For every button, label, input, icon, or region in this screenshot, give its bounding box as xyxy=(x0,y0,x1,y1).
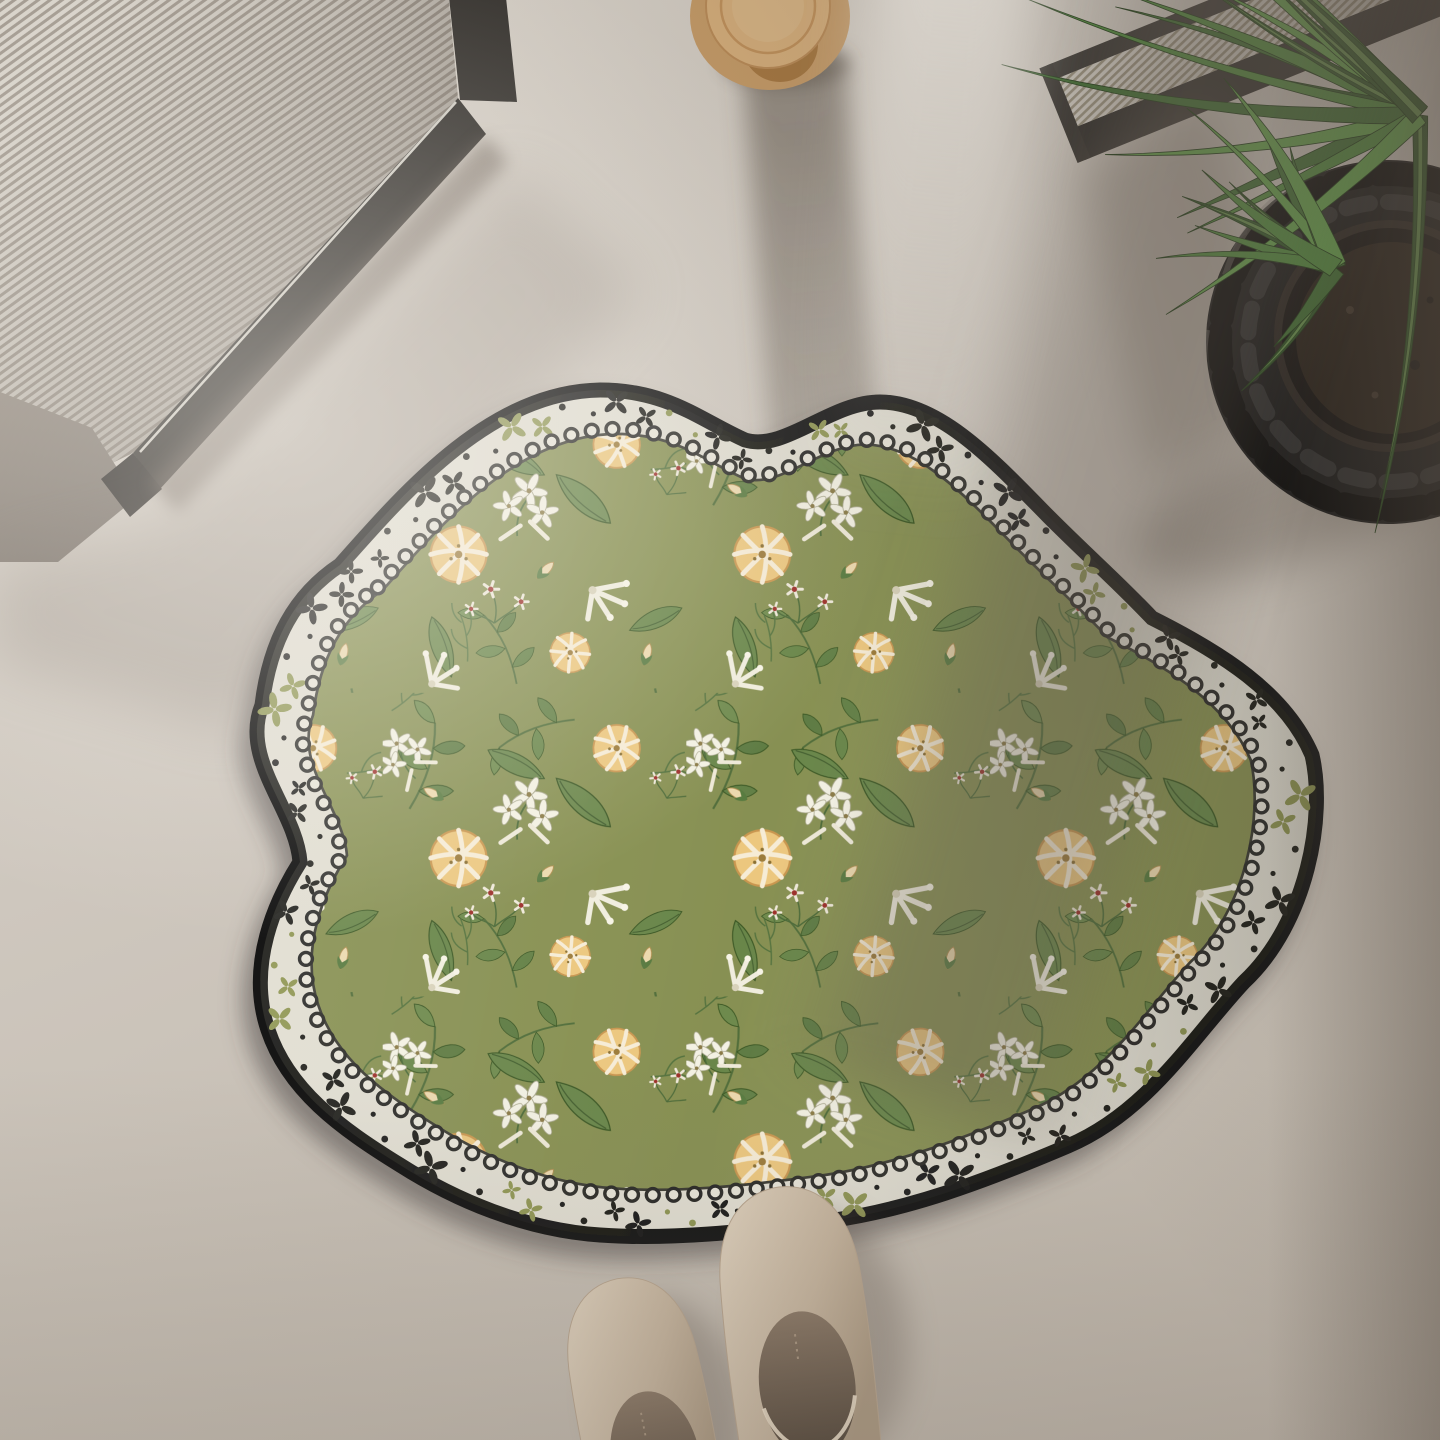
door-frame-right xyxy=(448,0,517,102)
scene-graphics xyxy=(0,0,1440,1440)
scene xyxy=(0,0,1440,1440)
